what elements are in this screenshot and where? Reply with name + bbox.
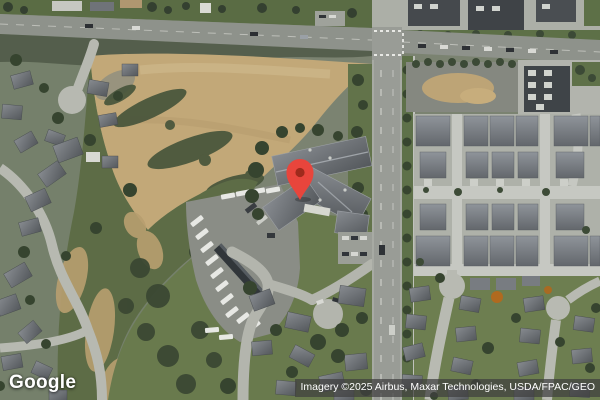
gravel-lot bbox=[406, 58, 600, 114]
marker-pin-icon[interactable] bbox=[287, 159, 314, 200]
marker-inner-dot bbox=[295, 168, 304, 177]
google-logo[interactable]: Google bbox=[9, 372, 76, 394]
townhouse-complex bbox=[414, 114, 600, 276]
map-attribution: Imagery ©2025 Airbus, Maxar Technologies… bbox=[295, 379, 600, 397]
vertical-road bbox=[372, 27, 403, 400]
marker-shadow bbox=[295, 197, 311, 202]
map-marker[interactable] bbox=[283, 153, 319, 203]
map-viewport[interactable]: Google Imagery ©2025 Airbus, Maxar Techn… bbox=[0, 0, 600, 400]
orange-tree bbox=[491, 291, 503, 303]
